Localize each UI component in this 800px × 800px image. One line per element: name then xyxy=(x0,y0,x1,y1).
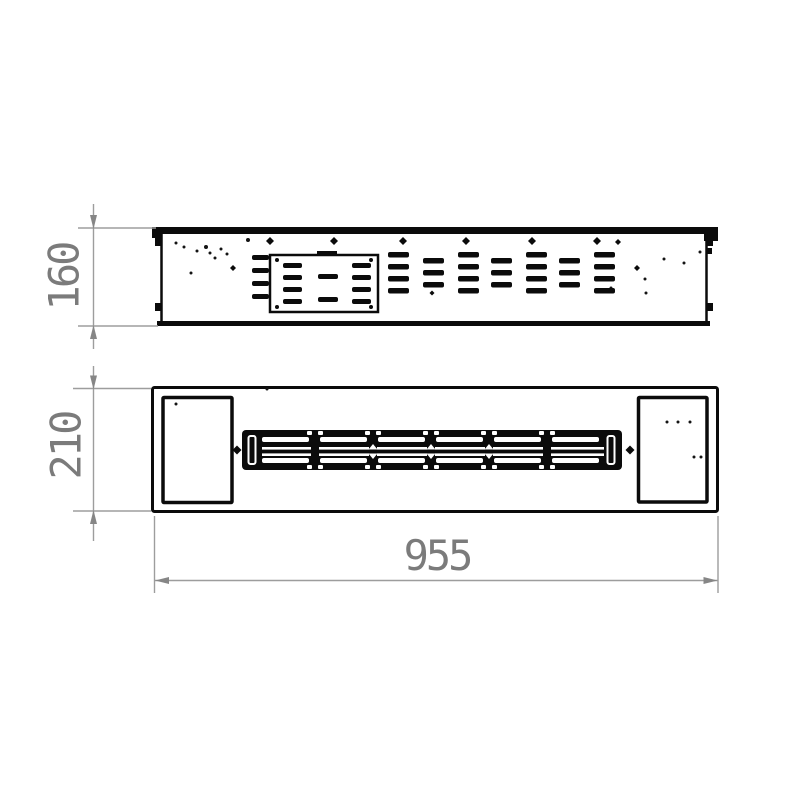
arrowhead-icon xyxy=(90,376,97,390)
burner-slot xyxy=(436,437,483,442)
burner-notch xyxy=(492,465,497,469)
speckle-dot xyxy=(220,248,223,251)
speckle-dot xyxy=(175,403,178,406)
vent-slot xyxy=(388,276,409,282)
arrowhead-icon xyxy=(90,325,97,339)
speckle-dot xyxy=(209,252,212,255)
vent-slot xyxy=(491,270,512,276)
burner-notch xyxy=(423,465,428,469)
speckle-dot xyxy=(699,251,702,254)
vent-slot xyxy=(559,270,580,276)
side-view xyxy=(152,227,718,324)
burner-slot xyxy=(378,437,425,442)
burner-notch xyxy=(318,431,323,435)
vent-slot xyxy=(458,264,479,270)
side-tab xyxy=(707,248,712,254)
speckle-dot xyxy=(175,242,178,245)
speckle-dot xyxy=(214,257,217,260)
speckle-dot xyxy=(190,272,193,275)
panel-vent-slot xyxy=(352,275,371,280)
burner-notch xyxy=(307,465,312,469)
vent-slot xyxy=(423,282,444,288)
burner-slot xyxy=(552,458,599,463)
dimension-depth-label: 210 xyxy=(41,412,90,480)
vent-slot xyxy=(252,281,269,286)
burner-slot xyxy=(552,437,599,442)
dimension-width-label: 955 xyxy=(404,531,471,580)
burner xyxy=(233,430,635,470)
vent-slot xyxy=(388,288,409,294)
burner-slot xyxy=(262,437,309,442)
screw-icon xyxy=(330,237,338,245)
dimension-depth: 210 xyxy=(41,366,151,541)
screw-icon xyxy=(399,237,407,245)
screw-icon xyxy=(528,237,536,245)
vent-slot xyxy=(252,268,269,273)
vent-slot xyxy=(458,252,479,258)
panel-vent-slot xyxy=(352,263,371,268)
vent-slot xyxy=(594,276,615,282)
panel-screw-icon xyxy=(275,305,279,309)
drawing-canvas: 160 210 955 xyxy=(0,0,800,800)
burner-joint-bar xyxy=(543,445,551,459)
burner-joint-bar xyxy=(311,445,319,459)
panel-vent-slot xyxy=(283,287,302,292)
right-tray xyxy=(639,398,708,503)
vent-slot xyxy=(559,282,580,288)
screw-icon xyxy=(230,265,236,271)
speckle-dot xyxy=(677,421,680,424)
side-tab xyxy=(707,303,713,311)
screw-icon xyxy=(634,265,640,271)
vent-slot xyxy=(491,258,512,264)
burner-notch xyxy=(481,431,486,435)
screw-icon xyxy=(615,239,621,245)
burner-notch xyxy=(550,465,555,469)
side-tab xyxy=(155,303,161,311)
vent-slot xyxy=(388,252,409,258)
side-tab xyxy=(155,238,161,246)
vent-slot xyxy=(526,252,547,258)
vent-slot xyxy=(458,276,479,282)
burner-notch xyxy=(434,465,439,469)
dimension-height-label: 160 xyxy=(39,243,88,311)
speckle-dot xyxy=(196,250,199,253)
speckle-dot xyxy=(644,278,647,281)
burner-notch xyxy=(376,431,381,435)
dimension-height: 160 xyxy=(39,204,158,349)
left-tray xyxy=(163,398,232,503)
screw-icon xyxy=(593,237,601,245)
burner-notch xyxy=(307,431,312,435)
burner-notch xyxy=(492,431,497,435)
vent-slot xyxy=(594,264,615,270)
vent-slot xyxy=(559,258,580,264)
vent-slot xyxy=(458,288,479,294)
side-tab xyxy=(707,239,713,246)
vent-slot xyxy=(252,255,269,260)
vent-slot xyxy=(423,258,444,264)
burner-notch xyxy=(550,431,555,435)
speckle-dot xyxy=(266,388,269,391)
speckle-dot xyxy=(700,456,703,459)
panel-vent-slot xyxy=(318,274,338,279)
panel-vent-slot xyxy=(352,299,371,304)
panel-vent-slot xyxy=(283,275,302,280)
burner-slot xyxy=(494,437,541,442)
panel-vent-slot xyxy=(318,297,338,302)
vent-slot xyxy=(252,294,269,299)
speckle-dot xyxy=(666,421,669,424)
burner-notch xyxy=(423,431,428,435)
vent-slot xyxy=(526,288,547,294)
vent-slot xyxy=(491,282,512,288)
burner-notch xyxy=(539,465,544,469)
dimension-width: 955 xyxy=(155,516,719,593)
speckle-dot xyxy=(693,456,696,459)
vent-slot xyxy=(423,270,444,276)
arrowhead-icon xyxy=(90,215,97,229)
arrowhead-icon xyxy=(155,577,169,584)
speckle-dot xyxy=(246,238,250,242)
burner-notch xyxy=(318,465,323,469)
panel-screw-icon xyxy=(369,305,373,309)
burner-notch xyxy=(365,465,370,469)
speckle-dot xyxy=(226,253,229,256)
screw-icon xyxy=(266,237,274,245)
top-view xyxy=(153,388,718,512)
arrowhead-icon xyxy=(90,510,97,524)
flange-endcap-left xyxy=(152,234,161,238)
burner-notch xyxy=(365,431,370,435)
burner-slot xyxy=(494,458,541,463)
burner-notch xyxy=(539,431,544,435)
technical-drawing-page: 160 210 955 xyxy=(0,0,800,800)
burner-slot xyxy=(320,458,367,463)
speckle-dot xyxy=(645,292,648,295)
burner-slot xyxy=(320,437,367,442)
burner-slot xyxy=(436,458,483,463)
vent-slot xyxy=(526,264,547,270)
burner-slot xyxy=(262,458,309,463)
mounting-flange xyxy=(152,227,718,234)
burner-notch xyxy=(481,465,486,469)
control-panel-top-tab xyxy=(317,251,337,255)
vent-slot xyxy=(526,276,547,282)
speckle-dot xyxy=(183,246,186,249)
vent-slot xyxy=(594,252,615,258)
panel-screw-icon xyxy=(369,258,373,262)
speckle-dot xyxy=(663,258,666,261)
panel-vent-slot xyxy=(283,299,302,304)
vent-slot xyxy=(388,264,409,270)
speckle-dot xyxy=(683,262,686,265)
vent-slot xyxy=(594,288,615,294)
panel-screw-icon xyxy=(275,258,279,262)
burner-slot xyxy=(378,458,425,463)
arrowhead-icon xyxy=(704,577,718,584)
panel-vent-slot xyxy=(283,263,302,268)
screw-icon xyxy=(462,237,470,245)
burner-notch xyxy=(376,465,381,469)
speckle-dot xyxy=(689,421,692,424)
speckle-dot xyxy=(204,245,208,249)
panel-vent-slot xyxy=(352,287,371,292)
burner-notch xyxy=(434,431,439,435)
screw-icon xyxy=(430,291,435,296)
